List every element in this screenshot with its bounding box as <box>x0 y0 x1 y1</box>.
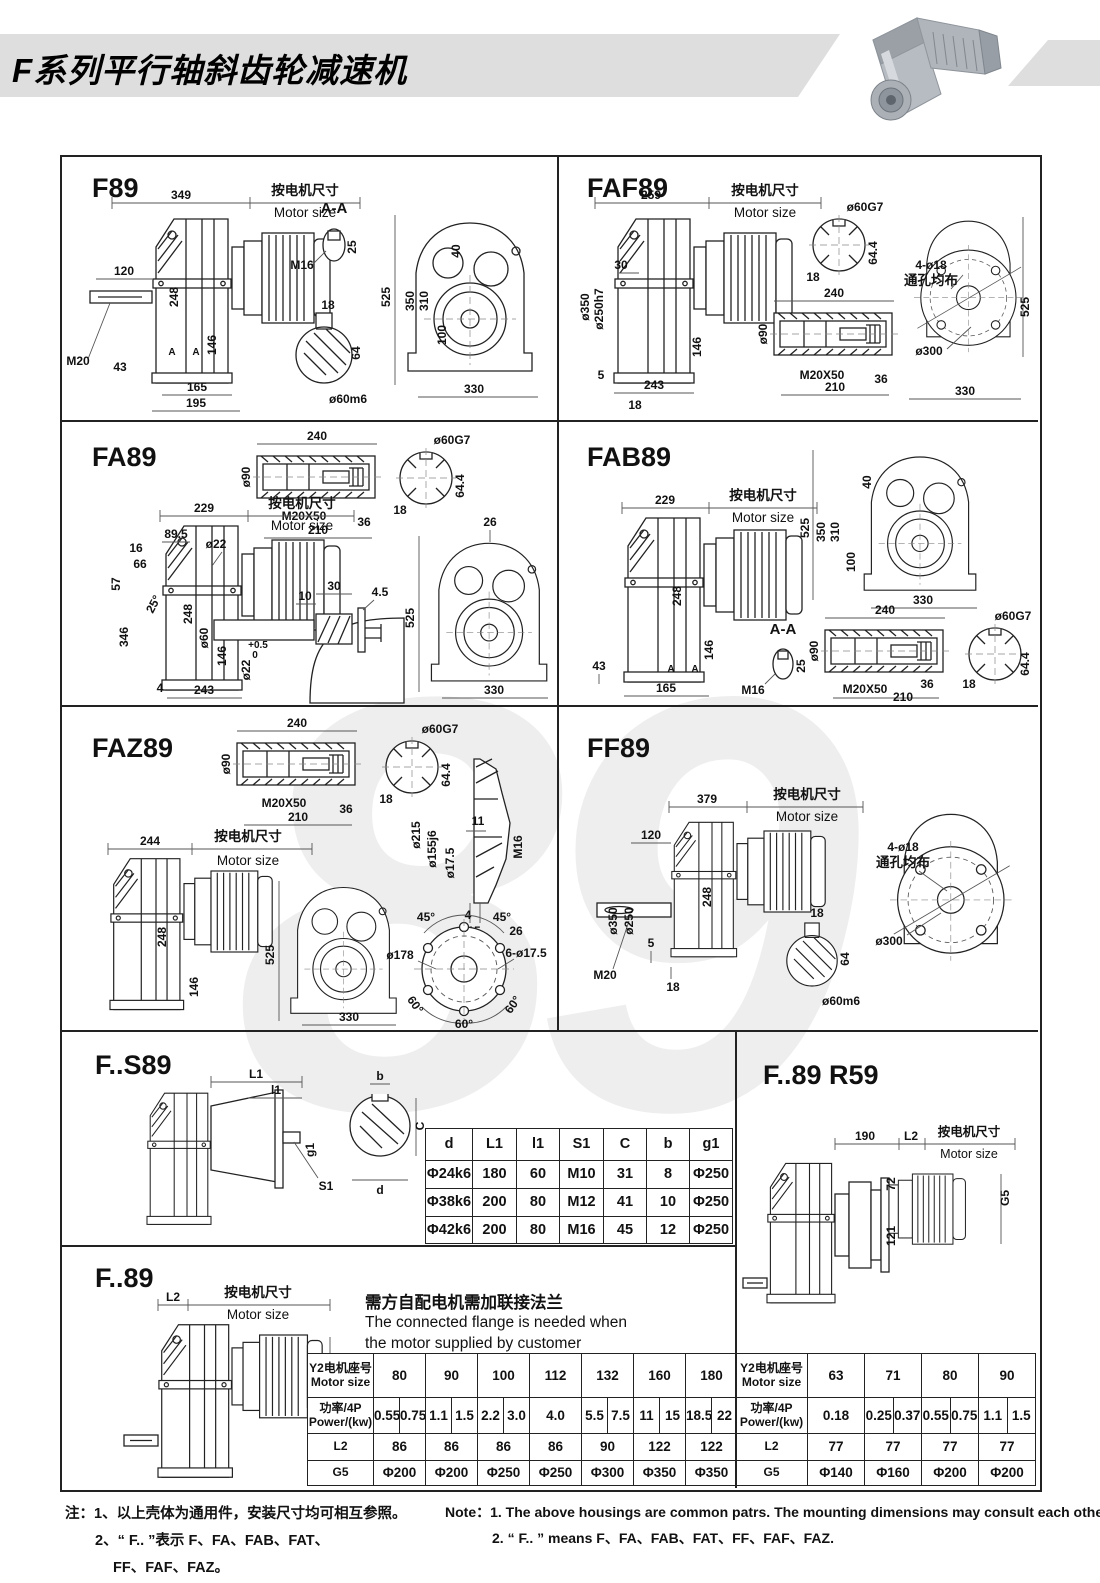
dim-label: ø60G7 <box>434 433 471 447</box>
dim-label: Motor size <box>217 853 279 868</box>
table-cell: 1.1 <box>979 1398 1008 1434</box>
dim-label: 243 <box>194 683 214 697</box>
dim-label: 310 <box>417 291 431 311</box>
drawing-shape <box>372 1094 388 1101</box>
table-cell: 200 <box>473 1189 517 1217</box>
dim-label: 36 <box>920 677 934 691</box>
faf89-side-view <box>595 197 821 393</box>
table-header-cell: l1 <box>517 1129 560 1161</box>
section-label: A-A <box>770 621 797 638</box>
table-row: Y2电机座号 Motor size8090100112132160180 <box>308 1354 738 1398</box>
dim-label: 146 <box>205 335 219 355</box>
table-row: dL1l1S1Cbg1 <box>426 1129 733 1161</box>
dim-label: 通孔均布 <box>876 854 930 870</box>
table-cell: Φ250 <box>690 1217 733 1244</box>
drawing-shape <box>871 1190 881 1260</box>
panel-fa89: FA89 240 ø90 M20X50 36 210 ø60G7 18 64.4… <box>62 422 555 703</box>
drawing-shape <box>350 1096 410 1156</box>
dim-label: 72 <box>884 1177 898 1191</box>
table-cell: Φ250 <box>530 1461 582 1486</box>
section-marker: A <box>691 664 698 675</box>
table-header-cell: G5 <box>736 1461 808 1486</box>
dim-label: 525 <box>379 287 393 307</box>
table-cell: 77 <box>922 1434 979 1461</box>
dim-label: 330 <box>955 384 975 398</box>
table-cell: 86 <box>374 1434 426 1461</box>
dim-label: 26 <box>483 515 497 529</box>
table-cell: 90 <box>582 1434 634 1461</box>
dim-label: ø60 <box>197 627 211 648</box>
table-cell: 5.5 <box>582 1398 608 1434</box>
fab89-drawing: FAB89 229 按电机尺寸 Motor size 248 146 43 16… <box>559 422 1038 703</box>
fr59-side-view <box>743 1138 1015 1303</box>
drawing-shape <box>328 231 340 240</box>
table-cell: Φ38k6 <box>426 1189 473 1217</box>
dim-label: 165 <box>187 380 207 394</box>
table-cell: 1.1 <box>426 1398 452 1434</box>
faz89-front-view <box>291 888 396 1014</box>
dim-label: ø178 <box>386 948 414 962</box>
dim-label: 525 <box>403 608 417 628</box>
dim-label: 165 <box>656 681 676 695</box>
dim-label: ø60G7 <box>422 722 459 736</box>
table-cell: 11 <box>634 1398 660 1434</box>
drawing-shape <box>889 1174 965 1244</box>
drawing-shape <box>358 608 365 652</box>
flange-note-en2: the motor supplied by customer <box>365 1334 627 1355</box>
dim-label: 64.4 <box>1018 652 1032 676</box>
drawing-shape <box>184 871 272 952</box>
table-header-cell: L2 <box>308 1434 374 1461</box>
dim-label: 16 <box>129 541 143 555</box>
dim-label: 18 <box>379 792 393 806</box>
table-cell: Φ250 <box>478 1461 530 1486</box>
drawing-shape <box>965 624 1025 684</box>
note-zh-2: 2、“ F.. ”表示 F、FA、FAB、FAT、 <box>95 1529 407 1550</box>
panel-title: F89 <box>92 173 139 203</box>
dim-label: g1 <box>303 1143 317 1157</box>
panel-ff89: FF89 379 按电机尺寸 Motor size 120 ø350 ø250 … <box>559 707 1038 1028</box>
dim-label: L1 <box>249 1067 263 1081</box>
faz89-bore-section <box>382 737 442 797</box>
dim-label: 330 <box>464 382 484 396</box>
ff89-drawing: FF89 379 按电机尺寸 Motor size 120 ø350 ø250 … <box>559 707 1038 1028</box>
dim-label: 240 <box>875 603 895 617</box>
table-cell: 86 <box>426 1434 478 1461</box>
table-cell: Φ350 <box>634 1461 686 1486</box>
dim-label: 248 <box>155 927 169 947</box>
drawing-shape <box>147 1093 211 1224</box>
table-cell: 122 <box>686 1434 738 1461</box>
dim-label: ø215 <box>409 821 423 849</box>
table-row: Φ24k618060M10318Φ250 <box>426 1161 733 1189</box>
drawing-shape <box>881 1178 889 1272</box>
table-cell: 22 <box>712 1398 738 1434</box>
table-header-cell: L2 <box>736 1434 808 1461</box>
divider-vertical-2 <box>735 1030 737 1488</box>
panel-fab89: FAB89 229 按电机尺寸 Motor size 248 146 43 16… <box>559 422 1038 703</box>
drawing-shape <box>694 233 792 323</box>
dim-label: ø250h7 <box>592 288 606 330</box>
panel-faf89: FAF89 259 按电机尺寸 Motor size ø350 ø250h7 3… <box>559 157 1038 418</box>
drawing-shape <box>382 737 442 797</box>
table-cell: Φ42k6 <box>426 1217 473 1244</box>
table-cell: 10 <box>647 1189 690 1217</box>
dim-label: d <box>376 1183 383 1197</box>
dim-label: 66 <box>133 557 147 571</box>
table-cell: 132 <box>582 1354 634 1398</box>
table-cell: 77 <box>808 1434 865 1461</box>
faz89-side-view <box>108 843 312 1010</box>
table-header-cell: L1 <box>473 1129 517 1161</box>
dim-label: 330 <box>484 683 504 697</box>
drawing-shape <box>424 944 433 953</box>
faz89-bolt-circle-view <box>414 915 514 1023</box>
table-cell: 0.75 <box>950 1398 979 1434</box>
dim-label: 4-ø18 <box>887 840 919 854</box>
faf89-bore-section <box>809 215 869 275</box>
dim-label: 229 <box>194 501 214 515</box>
dim-label: 36 <box>357 515 371 529</box>
dim-label: ø90 <box>219 753 233 774</box>
drawing-shape <box>624 518 704 682</box>
dim-label: ø90 <box>807 640 821 661</box>
dim-label: l1 <box>271 1083 281 1097</box>
dim-label: M16 <box>741 683 765 697</box>
dim-label: 60° <box>502 993 524 1016</box>
table-cell: Φ200 <box>374 1461 426 1486</box>
dim-label: ø90 <box>239 466 253 487</box>
table-cell: 4.0 <box>530 1398 582 1434</box>
dim-label: 57 <box>109 577 123 591</box>
section-marker: A <box>192 347 199 358</box>
dim-label: ø155j6 <box>425 830 439 868</box>
notes-en: Note：1. The above housings are common pa… <box>445 1502 1100 1548</box>
notes-zh: 注：1、以上壳体为通用件，安装尺寸均可相互参照。 2、“ F.. ”表示 F、F… <box>65 1502 407 1577</box>
dim-label: 30 <box>327 579 341 593</box>
table-cell: 0.18 <box>808 1398 865 1434</box>
dim-label: 按电机尺寸 <box>729 487 797 503</box>
dim-label: ø350 <box>606 907 620 935</box>
dim-label: 5 <box>598 368 605 382</box>
dim-label: 248 <box>167 287 181 307</box>
dim-label: 按电机尺寸 <box>214 828 282 844</box>
dim-label: 195 <box>186 396 206 410</box>
drawing-shape <box>737 831 825 912</box>
drawing-shape <box>184 871 272 952</box>
fs89-shaft-section <box>350 1084 416 1180</box>
dim-label: 146 <box>690 337 704 357</box>
dim-label: 64.4 <box>439 763 453 787</box>
dim-label: 30 <box>614 258 628 272</box>
dim-label: ø60m6 <box>329 392 367 406</box>
dim-label: 330 <box>913 593 933 607</box>
drawing-shape <box>214 620 314 640</box>
dim-label: ø60G7 <box>995 609 1032 623</box>
table-header-cell: Y2电机座号 Motor size <box>308 1354 374 1398</box>
dim-label: 45° <box>493 910 511 924</box>
dim-label: 18 <box>628 398 642 412</box>
dim-label: 18 <box>962 677 976 691</box>
dim-label: 379 <box>697 792 717 806</box>
drawing-shape <box>283 1132 300 1143</box>
table-row: L28686868690122122 <box>308 1434 738 1461</box>
table-row: G5Φ200Φ200Φ250Φ250Φ300Φ350Φ350 <box>308 1461 738 1486</box>
panel-title: F..S89 <box>95 1050 172 1080</box>
table-header-cell: C <box>604 1129 647 1161</box>
dim-label: 120 <box>114 264 134 278</box>
fab89-front-view <box>864 457 976 590</box>
dim-label: M20 <box>66 354 90 368</box>
dim-label: 4.5 <box>372 585 389 599</box>
table-cell: 7.5 <box>608 1398 634 1434</box>
fa89-bore-section <box>396 448 456 508</box>
drawing-shape <box>431 543 546 681</box>
dim-label: Motor size <box>734 205 796 220</box>
dim-label: M16 <box>290 258 314 272</box>
table-cell: 77 <box>979 1434 1036 1461</box>
table-cell: Φ350 <box>686 1461 738 1486</box>
note-zh-1: 注：1、以上壳体为通用件，安装尺寸均可相互参照。 <box>65 1502 407 1523</box>
dim-label: 6-ø17.5 <box>505 946 547 960</box>
table-cell: 80 <box>517 1217 560 1244</box>
dim-label: 36 <box>874 372 888 386</box>
dim-label: M20X50 <box>843 682 888 696</box>
dim-label: 64.4 <box>866 241 880 265</box>
dim-label: ø300 <box>915 344 943 358</box>
drawing-shape <box>108 843 312 855</box>
drawing-shape <box>737 831 825 912</box>
table-cell: 1.5 <box>1007 1398 1036 1434</box>
dim-label: 525 <box>1018 297 1032 317</box>
table-cell: M12 <box>560 1189 604 1217</box>
flange-note-en1: The connected flange is needed when <box>365 1313 627 1334</box>
drawing-shape <box>864 457 976 590</box>
faz89-flange-detail <box>466 759 510 923</box>
table-row: Φ42k620080M164512Φ250 <box>426 1217 733 1244</box>
ff89-flange-view <box>890 814 1012 960</box>
drawing-shape <box>614 219 694 383</box>
dim-label: 25° <box>143 593 164 616</box>
product-photo <box>845 2 1015 132</box>
dim-label: b <box>376 1069 383 1083</box>
drawing-shape <box>778 651 788 659</box>
drawing-shape <box>767 1163 835 1302</box>
table-cell: 3.0 <box>504 1398 530 1434</box>
dim-label: 60° <box>404 993 426 1016</box>
dim-label: 350 <box>814 522 828 542</box>
panel-faz89: FAZ89 240 ø90 M20X50 36 210 ø60G7 18 64.… <box>62 707 555 1028</box>
table-cell: 0.75 <box>400 1398 426 1434</box>
drawing-shape <box>496 986 505 995</box>
f89-drawing: F89 349 按电机尺寸 Motor size 120 M20 43 165 … <box>62 157 555 418</box>
dim-label: M16 <box>511 835 525 859</box>
dim-label: 40 <box>860 475 874 489</box>
table-cell: 86 <box>530 1434 582 1461</box>
table-row: Φ38k620080M124110Φ250 <box>426 1189 733 1217</box>
table-cell: Φ250 <box>690 1161 733 1189</box>
dim-label: S1 <box>319 1179 334 1193</box>
section-marker: A <box>667 664 674 675</box>
table-header-cell: 功率/4P Power/(kw) <box>308 1398 374 1434</box>
table-cell: Φ24k6 <box>426 1161 473 1189</box>
table-cell: 160 <box>634 1354 686 1398</box>
dim-label: 64 <box>349 346 363 360</box>
table-cell: 90 <box>979 1354 1036 1398</box>
section-label: A-A <box>321 200 348 217</box>
table-cell: M10 <box>560 1161 604 1189</box>
flange-note-zh: 需方自配电机需加联接法兰 <box>365 1289 627 1313</box>
dim-label: 按电机尺寸 <box>224 1284 292 1300</box>
dim-label: M20 <box>593 968 617 982</box>
table-cell: 45 <box>604 1217 647 1244</box>
dim-label: M20X50 <box>262 796 307 810</box>
drawing-shape <box>889 1174 965 1244</box>
dim-label: 210 <box>288 810 308 824</box>
table-cell: 2.2 <box>478 1398 504 1434</box>
dim-label: 18 <box>810 906 824 920</box>
dim-label: 按电机尺寸 <box>773 786 841 802</box>
dim-label: Motor size <box>940 1147 998 1161</box>
divider-horizontal-2 <box>60 705 1038 707</box>
dim-label: 243 <box>644 378 664 392</box>
table-header-cell: Y2电机座号 Motor size <box>736 1354 808 1398</box>
motor-table-right: Y2电机座号 Motor size63718090功率/4P Power/(kw… <box>735 1353 1036 1486</box>
table-cell: 41 <box>604 1189 647 1217</box>
dim-label: ø17.5 <box>443 847 457 878</box>
table-cell: 90 <box>426 1354 478 1398</box>
dim-label: 100 <box>844 552 858 572</box>
dim-label: 5 <box>648 936 655 950</box>
panel-title: FF89 <box>587 733 650 763</box>
dim-label: Motor size <box>227 1307 289 1322</box>
table-row: 功率/4P Power/(kw)0.550.751.11.52.23.04.05… <box>308 1398 738 1434</box>
table-row: L277777777 <box>736 1434 1036 1461</box>
dim-label: 0 <box>252 650 258 661</box>
dim-label: 146 <box>215 646 229 666</box>
table-row: 功率/4P Power/(kw)0.180.250.370.550.751.11… <box>736 1398 1036 1434</box>
dim-label: 210 <box>825 380 845 394</box>
table-cell: Φ250 <box>690 1189 733 1217</box>
dim-label: 26 <box>509 924 523 938</box>
dim-label: 89.5 <box>164 527 188 541</box>
drawing-shape <box>211 1092 277 1182</box>
drawing-shape <box>275 1090 283 1188</box>
dim-label: 525 <box>798 518 812 538</box>
table-cell: 80 <box>517 1189 560 1217</box>
dim-label: 64.4 <box>453 474 467 498</box>
drawing-shape <box>110 859 184 1010</box>
dim-label: 25 <box>794 659 808 673</box>
panel-title: FAZ89 <box>92 733 173 763</box>
table-cell: 71 <box>865 1354 922 1398</box>
table-cell: 18.5 <box>686 1398 712 1434</box>
note-zh-3: FF、FAF、FAZ。 <box>113 1556 407 1577</box>
dim-label: ø60m6 <box>822 994 860 1008</box>
dim-label: 121 <box>884 1226 898 1246</box>
table-header-cell: g1 <box>690 1129 733 1161</box>
drawing-shape <box>765 674 775 684</box>
dim-label: ø90 <box>756 323 770 344</box>
dim-label: 43 <box>113 360 127 374</box>
dim-label: 240 <box>307 429 327 443</box>
dim-label: 229 <box>655 493 675 507</box>
table-cell: 12 <box>647 1217 690 1244</box>
dim-label: 按电机尺寸 <box>731 182 799 198</box>
table-cell: Φ140 <box>808 1461 865 1486</box>
drawing-shape <box>886 95 896 105</box>
dim-label: 18 <box>321 298 335 312</box>
table-cell: 60 <box>517 1161 560 1189</box>
table-cell: 80 <box>922 1354 979 1398</box>
drawing-shape <box>424 986 433 995</box>
dim-label: 4-ø18 <box>915 258 947 272</box>
drawing-shape <box>770 313 898 355</box>
drawing-shape <box>147 1093 211 1224</box>
drawing-shape <box>809 215 869 275</box>
table-header-cell: b <box>647 1129 690 1161</box>
dim-label: ø22 <box>239 659 253 680</box>
table-cell: M16 <box>560 1217 604 1244</box>
drawing-shape <box>787 923 837 986</box>
dim-label: 240 <box>287 716 307 730</box>
ff89-shaft-section <box>787 923 837 986</box>
dim-label: ø350 <box>578 293 592 321</box>
dim-label: 248 <box>700 887 714 907</box>
section-marker: A <box>168 347 175 358</box>
fa89-front-view <box>431 543 546 681</box>
catalog-page: F系列平行轴斜齿轮减速机 89 F89 349 按电机尺寸 <box>0 0 1100 1583</box>
table-cell: 112 <box>530 1354 582 1398</box>
dim-label: +0.5 <box>248 640 268 651</box>
drawing-shape <box>890 814 1012 960</box>
table-cell: Φ160 <box>865 1461 922 1486</box>
dim-label: L2 <box>166 1290 180 1304</box>
motor-table-left: Y2电机座号 Motor size8090100112132160180功率/4… <box>307 1353 738 1486</box>
divider-horizontal-3 <box>60 1030 1038 1032</box>
table-cell: 0.55 <box>922 1398 951 1434</box>
dim-label: Motor size <box>271 518 333 533</box>
dim-label: 100 <box>435 325 449 345</box>
dim-label: 525 <box>263 945 277 965</box>
header-banner-accent <box>1008 40 1100 86</box>
faf89-drawing: FAF89 259 按电机尺寸 Motor size ø350 ø250h7 3… <box>559 157 1038 418</box>
fs89-side-view <box>147 1076 318 1224</box>
dim-label: 36 <box>339 802 353 816</box>
dim-label: 330 <box>339 1010 359 1024</box>
panel-title: FAB89 <box>587 442 671 472</box>
dim-label: 按电机尺寸 <box>271 182 339 198</box>
dim-label: Motor size <box>776 809 838 824</box>
dim-label: ø300 <box>875 934 903 948</box>
panel-title: F..89 <box>95 1263 154 1293</box>
fa89-drawing: FA89 240 ø90 M20X50 36 210 ø60G7 18 64.4… <box>62 422 555 703</box>
dim-label: ø250 <box>622 907 636 935</box>
table-header-cell: 功率/4P Power/(kw) <box>736 1398 808 1434</box>
drawing-shape <box>835 1194 849 1256</box>
panel-f89: F89 349 按电机尺寸 Motor size 120 M20 43 165 … <box>62 157 555 418</box>
fab89-bore-section <box>965 624 1025 684</box>
page-title: F系列平行轴斜齿轮减速机 <box>12 44 407 92</box>
dim-label: 346 <box>117 627 131 647</box>
dim-label: 240 <box>824 286 844 300</box>
dim-label: 通孔均布 <box>904 272 958 288</box>
f89b-side-view <box>124 1299 330 1477</box>
dim-label: 248 <box>181 604 195 624</box>
drawing-shape <box>158 1325 232 1478</box>
dim-label: 310 <box>828 522 842 542</box>
table-cell: 63 <box>808 1354 865 1398</box>
